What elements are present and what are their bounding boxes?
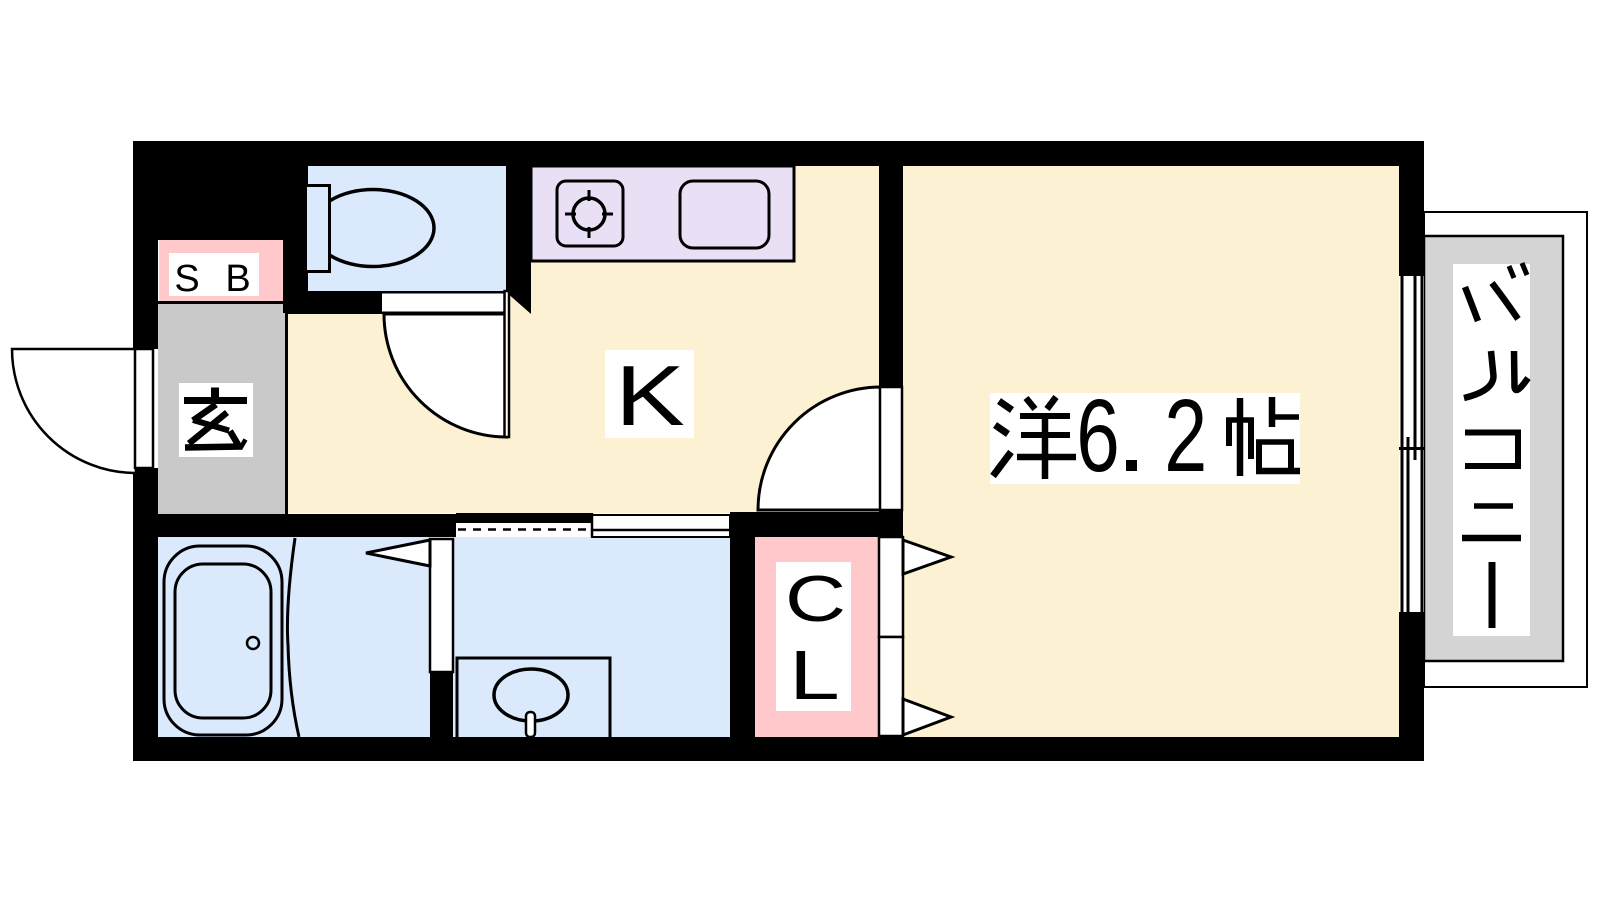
svg-text:6: 6 (1076, 379, 1120, 494)
svg-text:C: C (785, 562, 846, 634)
svg-text:L: L (789, 637, 840, 715)
svg-text:B: B (225, 258, 250, 300)
svg-text:2: 2 (1164, 379, 1207, 493)
svg-text:S: S (174, 258, 199, 300)
svg-text:K: K (615, 349, 685, 444)
